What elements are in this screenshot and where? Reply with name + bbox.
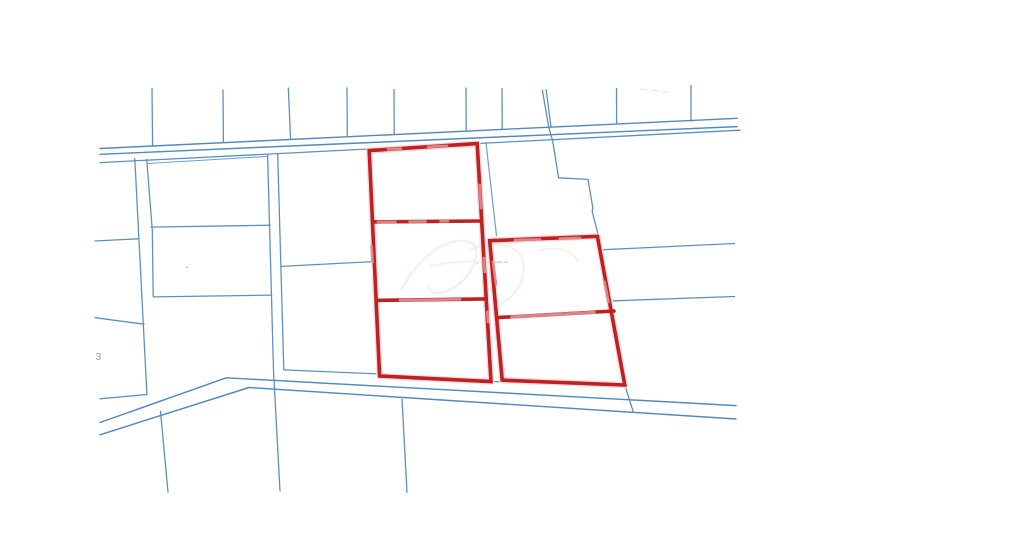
svg-text:3: 3 [96,351,102,363]
